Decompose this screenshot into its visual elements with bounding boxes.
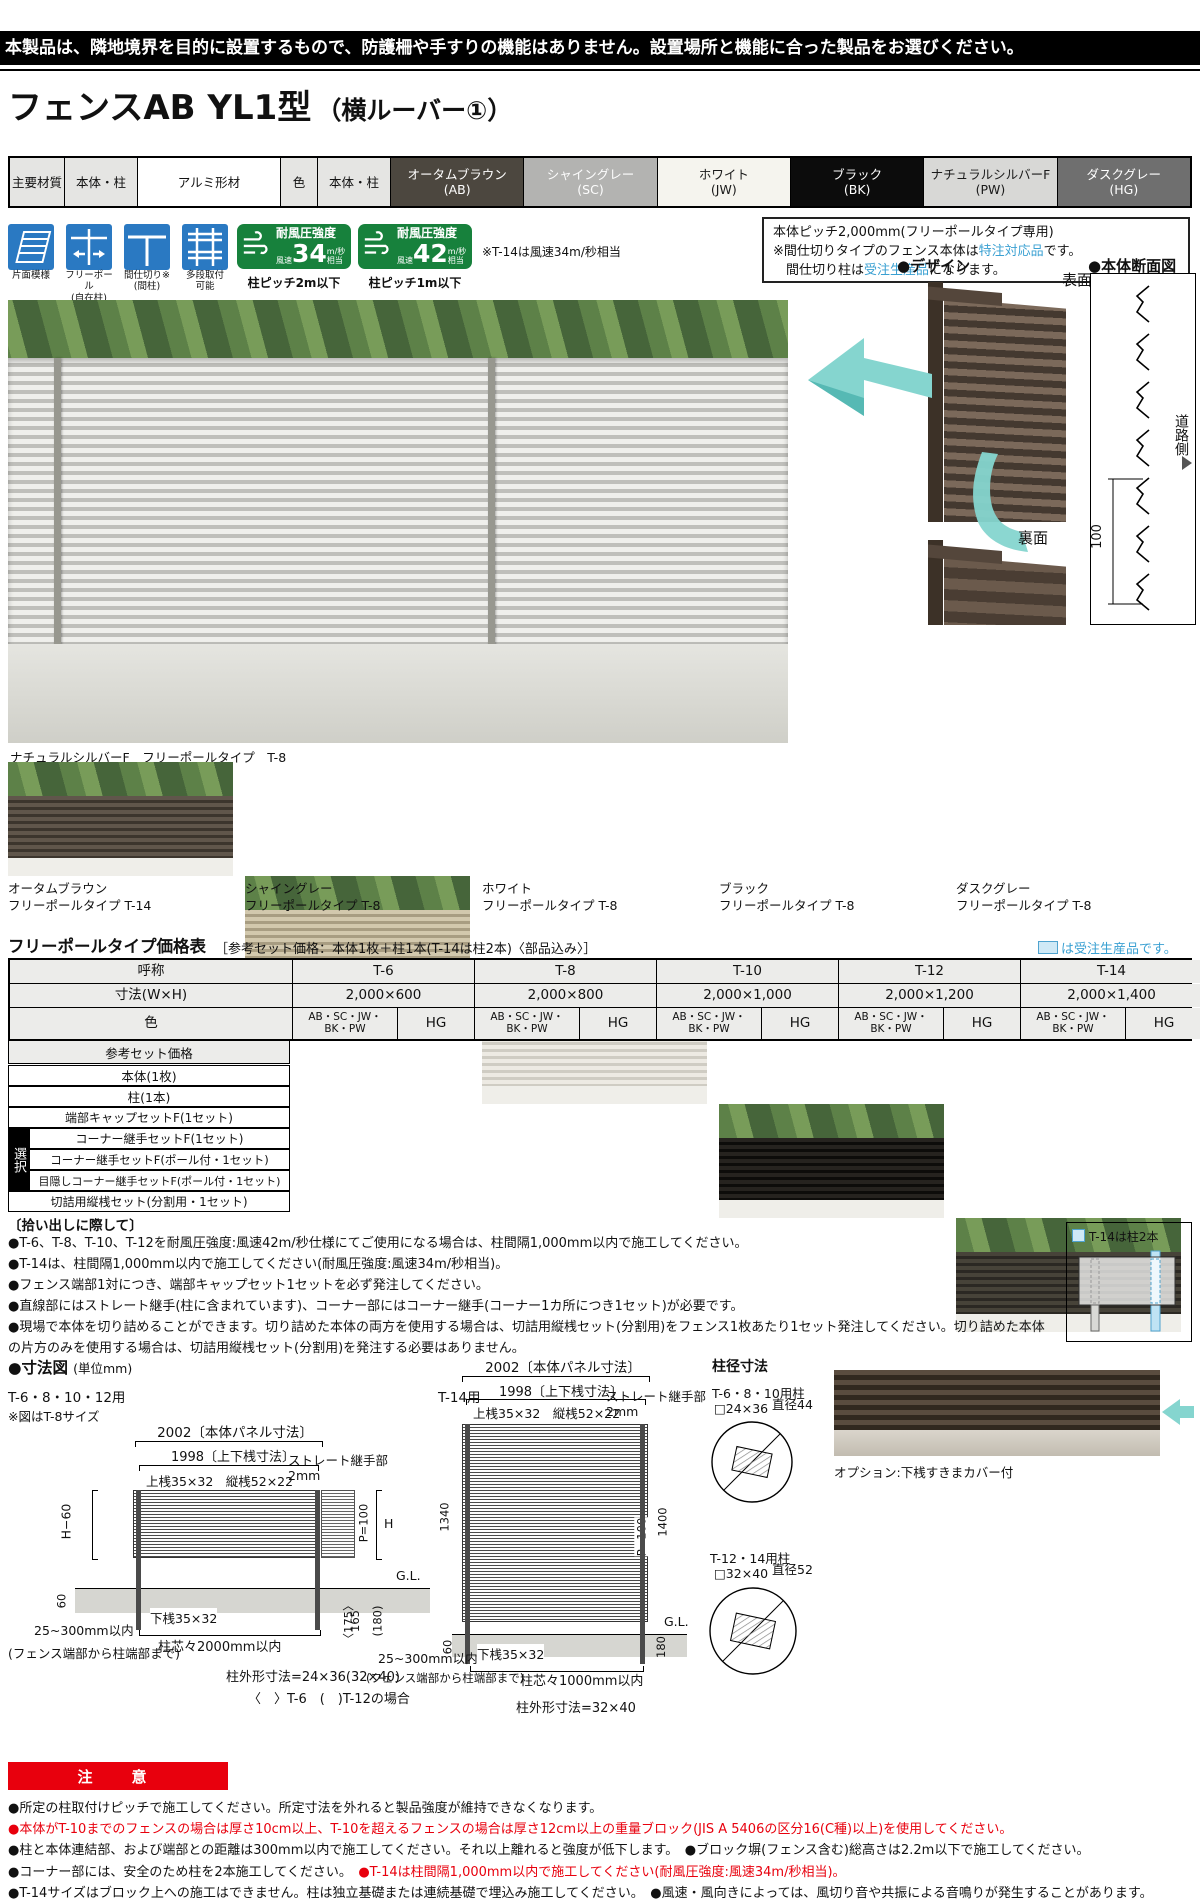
price-table-subtitle: ［参考セット価格：本体1枚＋柱1本(T-14は柱2本)〈部品込み〉］ (215, 938, 596, 957)
row-post: 柱(1本) (8, 1086, 290, 1107)
color-code: (PW) (976, 182, 1006, 197)
fence-post (54, 358, 61, 658)
post1-diameter: 直径44 (772, 1394, 813, 1413)
wind-badge-42-note: 柱ピッチ1m以下 (358, 274, 472, 291)
feature-single-side: 片面模様 (8, 224, 58, 304)
wind-equiv: 相当 (448, 257, 467, 266)
spec-color-table: 主要材質 本体・柱 アルミ形材 色 本体・柱 オータムブラウン (AB) シャイ… (8, 156, 1192, 208)
col-t10: T-10 (657, 960, 838, 983)
airflow-arrow-icon (806, 328, 936, 432)
dim-top-rail: 上桟35×32 縦桟52×22 (146, 1471, 293, 1490)
wind-badge-34: 耐風圧強度 風速 34 m/秒 相当 (237, 224, 351, 269)
color-name: ダスクグレー (1087, 167, 1162, 182)
pickup-item: ●フェンス端部1対につき、端部キャップセット1セットを必ず発注してください。 (8, 1275, 1053, 1296)
feature-sublabel: (間柱) (120, 281, 174, 292)
feature-label: フリーポール (62, 270, 116, 293)
pitch-line2-end: です。 (1044, 244, 1082, 259)
option-caption: オプション:下桟すきまカバー付 (834, 1462, 1013, 1481)
caution-line: ●柱と本体連結部、および端部との距離は300mm以内で施工してください。それ以上… (8, 1839, 1090, 1858)
pickup-item: ●現場で本体を切り詰めることができます。切り詰めた本体の両方を使用する場合は、切… (8, 1317, 1053, 1359)
feature-sublabel: 可能 (178, 281, 232, 292)
free-pole-icon (66, 224, 112, 270)
post2-section-diagram (704, 1582, 802, 1680)
color-code: (BK) (844, 182, 871, 197)
greenery (719, 1104, 944, 1140)
fence-panel-drawing (133, 1490, 320, 1558)
feature-icons: 片面模様 フリーポール (自在柱) 間仕切り※ (間柱) 多段取付 可能 (8, 224, 232, 304)
dim-line (92, 1490, 98, 1560)
adjacent-panel-drawing (321, 1490, 355, 1558)
pickup-item: ●直線部にはストレート継手(柱に含まれています)、コーナー部にはコーナー継手(コ… (8, 1296, 1053, 1317)
color-group-a: AB・SC・JW・BK・PW (1021, 1008, 1125, 1039)
color-group-b: HG (762, 1008, 838, 1039)
road-side-label: 道路側 (1171, 414, 1191, 456)
wind-icon (241, 229, 273, 265)
color-chip-autumn-brown: オータムブラウン (AB) (391, 158, 524, 206)
wind-equiv: 相当 (327, 257, 346, 266)
main-product-photo (8, 300, 788, 743)
color-code: (HG) (1109, 182, 1138, 197)
dim-edge-note: (フェンス端部から柱端部まで) (366, 1670, 524, 1686)
color-name: ナチュラルシルバーF (931, 167, 1051, 182)
post1-size: □24×36 (714, 1401, 768, 1416)
dim-line (376, 1490, 382, 1560)
made-to-order-marker (1072, 1229, 1085, 1242)
dim-p100: P=100 (356, 1504, 370, 1543)
option-pointer-arrow-icon (1160, 1396, 1196, 1428)
wind-icon (362, 229, 394, 265)
swatch-caption: オータムブラウンフリーポールタイプ T-14 (8, 880, 151, 914)
color-group-a: AB・SC・JW・BK・PW (839, 1008, 943, 1039)
design-back-image (928, 540, 1066, 625)
post-line (136, 1490, 141, 1630)
caution-line: ●T-14サイズはブロック上への施工はできません。柱は独立基礎または連続基礎で埋… (8, 1882, 1153, 1901)
post-dims-heading: 柱径寸法 (712, 1356, 768, 1376)
divider-line (0, 69, 1200, 71)
spec-color-label: 色 (281, 158, 318, 206)
pitch-line3: 間仕切り柱は (773, 263, 864, 278)
col-t8: T-8 (475, 960, 656, 983)
gl-label: G.L. (664, 1614, 689, 1629)
caution-banner: 注 意 (8, 1762, 228, 1790)
dims-unit: (単位mm) (73, 1361, 132, 1376)
single-side-pattern-icon (8, 224, 54, 270)
swatch-caption: ダスクグレーフリーポールタイプ T-8 (956, 880, 1091, 914)
color-group-a: AB・SC・JW・BK・PW (293, 1008, 397, 1039)
product-subtitle: （横ルーバー①） (316, 96, 512, 125)
design-heading: ●デザイン (897, 255, 970, 276)
size-t14: 2,000×1,400 (1021, 984, 1200, 1007)
wind-speed-label: 風速 (397, 257, 413, 266)
wind-speed-label: 風速 (276, 257, 292, 266)
dim-1400: 1400 (656, 1507, 670, 1536)
feature-partition: 間仕切り※ (間柱) (124, 224, 174, 304)
wind-value: 34 (292, 241, 327, 266)
dim-1340: 1340 (438, 1502, 452, 1531)
page-title: フェンスAB YL1型 （横ルーバー①） (8, 80, 512, 129)
top-notice-bar: 本製品は、隣地境界を目的に設置するもので、防護柵や手すりの機能はありません。設置… (0, 31, 1200, 65)
concrete-base (834, 1430, 1160, 1456)
multi-tier-icon (182, 224, 228, 270)
swatch-caption: ブラックフリーポールタイプ T-8 (719, 880, 854, 914)
dim-180: 180 (654, 1636, 668, 1658)
row-corner-joint: コーナー継手セットF(1セット) (29, 1128, 290, 1149)
fence-panel-drawing-t14 (462, 1424, 648, 1622)
dim-post-outer: 柱外形寸法=32×40 (516, 1697, 636, 1716)
dim-bottom-rail: 下桟35×32 (477, 1644, 544, 1663)
dim-165: 165 (348, 1610, 362, 1632)
pickup-heading: 〔拾い出しに際して〕 (8, 1214, 143, 1234)
dim-joint-gap: 2mm (606, 1404, 638, 1419)
feature-multi-tier: 多段取付 可能 (182, 224, 232, 304)
dim-edge-note: (フェンス端部から柱端部まで) (8, 1643, 180, 1662)
post2-size: □32×40 (714, 1566, 768, 1581)
swatch-fence (719, 1138, 944, 1200)
caution-line: ●本体がT-10までのフェンスの場合は厚さ10cm以上、T-10を超えるフェンス… (8, 1818, 1012, 1837)
row-cut-rail-set: 切詰用縦桟セット(分割用・1セット) (8, 1191, 290, 1212)
dim-edge: 25~300mm以内 (34, 1620, 134, 1639)
wind-badge-42: 耐風圧強度 風速 42 m/秒 相当 (358, 224, 472, 269)
spec-scope1: 本体・柱 (65, 158, 138, 206)
caution-line: ●所定の柱取付けピッチで施工してください。所定寸法を外れると製品強度が維持できな… (8, 1797, 602, 1816)
color-name: シャイングレー (547, 167, 635, 182)
pickup-item: ●T-6、T-8、T-10、T-12を耐風圧強度:風速42m/秒仕様にてご使用に… (8, 1233, 1053, 1254)
color-chip-black: ブラック (BK) (791, 158, 924, 206)
row-corner-joint-pole: コーナー継手セットF(ポール付・1セット) (29, 1149, 290, 1170)
select-group-label: 選択 (8, 1128, 29, 1191)
color-name: ホワイト (699, 167, 749, 182)
t14-box-label: T-14は柱2本 (1089, 1228, 1158, 1245)
post2-diameter: 直径52 (772, 1559, 813, 1578)
swatch-caption: シャイングレーフリーポールタイプ T-8 (245, 880, 380, 914)
swatch-base (482, 1086, 707, 1104)
row-end-cap: 端部キャップセットF(1セット) (8, 1107, 290, 1128)
size-t10: 2,000×1,000 (657, 984, 838, 1007)
size-t6: 2,000×600 (293, 984, 474, 1007)
color-name: ブラック (832, 167, 882, 182)
dim-panel-2002: 2002〔本体パネル寸法〕 (140, 1421, 330, 1441)
color-code: (JW) (711, 182, 737, 197)
concrete-base (8, 644, 788, 743)
fence-post (488, 358, 495, 658)
dims-left-usage: T-6・8・10・12用 (8, 1386, 125, 1406)
post-line (640, 1424, 645, 1664)
row-panel: 本体(1枚) (8, 1065, 290, 1086)
size-t8: 2,000×800 (475, 984, 656, 1007)
catalog-page: 本製品は、隣地境界を目的に設置するもので、防護柵や手すりの機能はありません。設置… (0, 0, 1200, 1904)
feature-label: 片面模様 (4, 270, 58, 281)
silver-louver-fence (8, 358, 788, 644)
color-group-b: HG (398, 1008, 474, 1039)
swatch-caption: ホワイトフリーポールタイプ T-8 (482, 880, 617, 914)
product-name: フェンスAB YL1型 (8, 88, 311, 128)
t14-post-diagram (1067, 1245, 1190, 1339)
row-set-price: 参考セット価格 (8, 1040, 290, 1064)
dim-60: 60 (54, 1594, 68, 1609)
pickup-item: ●T-14は、柱間隔1,000mm以内で施工してください(耐風圧強度:風速34m… (8, 1254, 1053, 1275)
swatch-base (719, 1200, 944, 1218)
brown-louver-closeup (834, 1370, 1160, 1430)
caution-line: ●コーナー部には、安全のため柱を2本施工してください。 ●T-14は柱間隔1,0… (8, 1861, 846, 1880)
section-diagram: 道路側 100 (1090, 273, 1196, 625)
color-chip-shine-gray: シャイングレー (SC) (524, 158, 657, 206)
size-label: 寸法(W×H) (10, 984, 292, 1007)
color-group-b: HG (1126, 1008, 1200, 1039)
size-t12: 2,000×1,200 (839, 984, 1020, 1007)
dim-h60: H−60 (58, 1504, 73, 1540)
price-table-header: 呼称 T-6 T-8 T-10 T-12 T-14 寸法(W×H) 2,000×… (8, 958, 1192, 1041)
road-direction-arrow (1182, 456, 1199, 470)
custom-order-text: 特注対応品 (979, 244, 1044, 259)
dim-straight-joint: ストレート継手部 (288, 1450, 388, 1469)
color-code: (SC) (577, 182, 603, 197)
spec-material-value: アルミ形材 (138, 158, 281, 206)
dims-heading: ●寸法図 (単位mm) (8, 1356, 132, 1378)
color-group-b: HG (944, 1008, 1020, 1039)
dim-post-outer-note: 〈 〉T-6 ( )T-12の場合 (248, 1688, 410, 1707)
swatch-photo-autumn-brown (8, 762, 233, 876)
dim-straight-joint: ストレート継手部 (606, 1386, 706, 1405)
greenery (8, 762, 233, 798)
color-chip-natural-silver: ナチュラルシルバーF (PW) (924, 158, 1057, 206)
pickup-notes: ●T-6、T-8、T-10、T-12を耐風圧強度:風速42m/秒仕様にてご使用に… (8, 1233, 1053, 1359)
t14-two-post-box: T-14は柱2本 (1066, 1222, 1192, 1342)
color-group-a: AB・SC・JW・BK・PW (475, 1008, 579, 1039)
dim-panel-2002: 2002〔本体パネル寸法〕 (468, 1356, 658, 1376)
louver-panel-back (944, 556, 1066, 625)
color-group-a: AB・SC・JW・BK・PW (657, 1008, 761, 1039)
feature-label: 間仕切り※ (120, 270, 174, 281)
col-name-label: 呼称 (10, 960, 292, 983)
wind-footnote: ※T-14は風速34m/秒相当 (482, 243, 621, 260)
spec-scope2: 本体・柱 (318, 158, 391, 206)
option-cover-photo (834, 1370, 1160, 1456)
post-line (315, 1490, 320, 1630)
dim-edge: 25~300mm以内 (378, 1648, 478, 1667)
swatch-fence (8, 796, 233, 858)
dim-180: (180) (370, 1606, 384, 1637)
dims-left-note: ※図はT-8サイズ (8, 1406, 100, 1425)
partition-icon (124, 224, 170, 270)
dim-top-rail: 上桟35×32 縦桟52×22 (473, 1403, 620, 1422)
color-name: オータムブラウン (408, 167, 507, 182)
color-code: (AB) (444, 182, 471, 197)
dim-joint-gap: 2mm (288, 1468, 320, 1483)
dims-heading-text: ●寸法図 (8, 1359, 68, 1377)
made-to-order-legend-box (1038, 941, 1058, 954)
swatch-base (8, 858, 233, 876)
col-t14: T-14 (1021, 960, 1200, 983)
wind-badge-34-note: 柱ピッチ2m以下 (237, 274, 351, 291)
dim-bottom-rail: 下桟35×32 (150, 1608, 217, 1627)
color-chip-white: ホワイト (JW) (658, 158, 791, 206)
spec-material-label: 主要材質 (10, 158, 65, 206)
row-screen-corner-joint: 目隠しコーナー継手セットF(ポール付・1セット) (29, 1170, 290, 1191)
gl-label: G.L. (396, 1568, 421, 1583)
color-chip-dusk-gray: ダスクグレー (HG) (1058, 158, 1190, 206)
price-table-title: フリーポールタイプ価格表 (8, 933, 206, 957)
color-group-b: HG (580, 1008, 656, 1039)
feature-free-pole: フリーポール (自在柱) (66, 224, 116, 304)
wind-value: 42 (413, 241, 448, 266)
post1-section-diagram (706, 1416, 798, 1508)
feature-label: 多段取付 (178, 270, 232, 281)
pitch-line1: 本体ピッチ2,000mm(フリーポールタイプ専用) (773, 225, 1054, 240)
color-row-label: 色 (10, 1008, 292, 1039)
swatch-photo-black (719, 1104, 944, 1218)
dim-post-pitch-1000: 柱芯々1000mm以内 (520, 1670, 643, 1689)
dim-h: H (384, 1516, 393, 1531)
section-dim-100: 100 (1090, 524, 1105, 549)
made-to-order-legend-text: は受注生産品です。 (1061, 938, 1177, 957)
col-t6: T-6 (293, 960, 474, 983)
col-t12: T-12 (839, 960, 1020, 983)
post-line (465, 1424, 470, 1664)
